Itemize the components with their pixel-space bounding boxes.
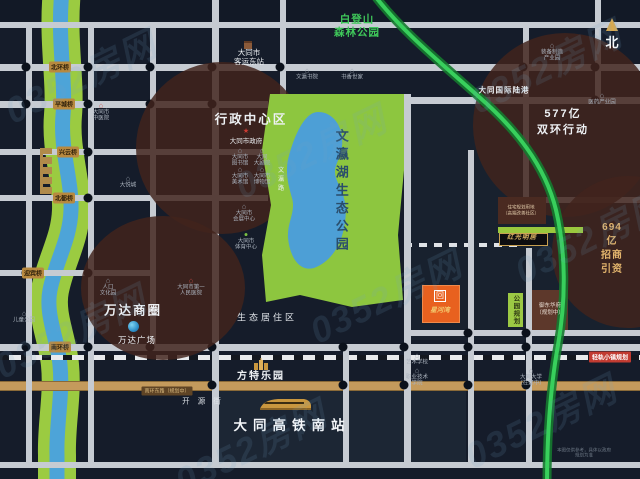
map-disclaimer: 本图仅供参考，具体以政府规划为准 <box>556 448 612 459</box>
admin-zone-label: 行政中心区 <box>215 113 288 128</box>
compass-arrow-icon <box>606 18 618 31</box>
light-rail-tag: 轻轨小镇规划 <box>589 352 631 363</box>
poi: ⌂大同 大剧院 <box>254 148 271 167</box>
planning-parcel-label: 住宅规划用地 （高端改善社区） <box>503 204 539 215</box>
park-plan-label: 公园规划 <box>511 295 519 325</box>
project-logo: 回 <box>434 290 446 302</box>
bridge-label: 兴云桥 <box>57 147 79 158</box>
building-icon: ⌂ <box>296 68 318 75</box>
wenying-road-label: 文瀛路 <box>275 167 282 194</box>
building-icon: ⌂ <box>100 278 117 285</box>
poi: ⌂大同大学 （在建中） <box>517 368 545 387</box>
poi-label: 大同市 会展中心 <box>233 211 255 223</box>
bridge-label: 南环桥 <box>49 342 71 353</box>
poi-label: 大同市 体育中心 <box>235 239 257 251</box>
eco-zone-label: 生态居住区 <box>237 313 297 324</box>
poi: ⌂大同市 中医院 <box>93 103 110 122</box>
poi-label: 大同大学 （在建中） <box>517 375 545 387</box>
poi-label: 职业技术 学院 <box>406 375 428 387</box>
building-icon: ⌂ <box>13 311 35 318</box>
poi: ⌂大同市 博物馆 <box>254 167 271 186</box>
ring-highway <box>0 0 640 479</box>
park-icon: ● <box>235 232 257 239</box>
bridge-label: 北环桥 <box>49 62 71 73</box>
poi-label: 大同市第一 人民医院 <box>177 285 205 297</box>
poi-label: 大悦城 <box>120 183 137 189</box>
bridge-label: 北都桥 <box>53 193 75 204</box>
bridge-label: 迎宾桥 <box>22 268 44 279</box>
poi-label: 大同市 图书馆 <box>232 155 249 167</box>
fangte-park-label: 方特乐园 <box>237 371 285 383</box>
kaiyuan-street-label: 开 源 街 <box>182 397 224 406</box>
compass-label: 北 <box>600 32 624 51</box>
building-icon: ⌂ <box>254 148 271 155</box>
poi-label: 装备制造 产业园 <box>541 50 563 62</box>
poi: ⌂装备制造 产业园 <box>541 43 563 62</box>
building-icon: ⌂ <box>93 103 110 110</box>
poi: ⌂儿童公园 <box>13 311 35 324</box>
poi: ⌂大同市 图书馆 <box>232 148 249 167</box>
bridge-label: 平城桥 <box>53 99 75 110</box>
huafu-parcel-label: 御东华府 （规划中） <box>536 303 564 317</box>
poi: ⌂大同市 会展中心 <box>233 204 255 223</box>
train-icon <box>258 396 312 412</box>
poi-label: 人口 文化园 <box>100 285 117 297</box>
poi-label: 医药产业园 <box>588 100 616 106</box>
poi: ⌂医药产业园 <box>588 93 616 106</box>
poi-label: 文瀛书院 <box>296 75 318 81</box>
hsr-station-label: 大同高铁南站 <box>234 418 351 434</box>
project-name-label[interactable]: 星河湾 <box>430 307 450 315</box>
wanda-circle-label: 万达商圈 <box>104 304 162 319</box>
south-ring-tag: 南环东路（规划中） <box>141 387 192 396</box>
poi: ⌂职业技术 学院 <box>406 368 428 387</box>
building-icon: ⌂ <box>588 93 616 100</box>
poi: ⌂人口 文化园 <box>100 278 117 297</box>
poi-label: 大同市 美术馆 <box>232 174 249 186</box>
building-icon: ⌂ <box>517 368 545 375</box>
city-wall-icon <box>40 148 52 194</box>
lake-park-label: 文瀛湖生态公园 <box>333 129 349 255</box>
building-icon: ⌂ <box>232 148 249 155</box>
building-icon: ⌂ <box>406 353 428 360</box>
circle-694-label: 694亿 招商引资 <box>598 221 626 277</box>
wanda-plaza-icon <box>128 321 139 332</box>
city-gov-icon: ★ <box>243 128 249 136</box>
city-gov-label: 大同市政府 <box>230 138 263 146</box>
hongguang-label: 红光明居 <box>507 234 537 242</box>
poi: ⌂书香世家 <box>341 68 363 81</box>
wanda-plaza-label: 万达广场 <box>118 335 156 345</box>
poi-label: 大同市 博物馆 <box>254 174 271 186</box>
poi: ⌂大悦城 <box>120 176 137 189</box>
poi: ⌂艺术学校 <box>406 353 428 366</box>
poi-label: 艺术学校 <box>406 360 428 366</box>
forest-park-label: 白登山 森林公园 <box>334 13 380 38</box>
poi: ⌂大同市第一 人民医院 <box>177 278 205 297</box>
building-icon: ⌂ <box>233 204 255 211</box>
building-icon: ⌂ <box>254 167 271 174</box>
bus-station-label: 大同市 客运东站 <box>234 48 264 66</box>
map: 白登山 森林公园 大同市 客运东站 行政中心区 ★ 大同市政府 文瀛湖生态公园 … <box>0 0 640 479</box>
building-icon: ⌂ <box>120 176 137 183</box>
poi-label: 儿童公园 <box>13 318 35 324</box>
poi-label: 书香世家 <box>341 75 363 81</box>
poi-label: 大同市 中医院 <box>93 110 110 122</box>
building-icon: ⌂ <box>177 278 205 285</box>
building-icon: ⌂ <box>341 68 363 75</box>
poi: ⌂大同市 美术馆 <box>232 167 249 186</box>
compass: 北 <box>600 18 624 51</box>
poi: ⌂文瀛书院 <box>296 68 318 81</box>
poi-label: 大同 大剧院 <box>254 155 271 167</box>
building-icon: ⌂ <box>541 43 563 50</box>
circle-577-label: 577亿 双环行动 <box>537 107 589 139</box>
fangte-castle-icon <box>253 358 269 370</box>
building-icon: ⌂ <box>406 368 428 375</box>
poi: ●大同市 体育中心 <box>235 232 257 251</box>
intl-port-label: 大同国际陆港 <box>479 86 530 95</box>
building-icon: ⌂ <box>232 167 249 174</box>
